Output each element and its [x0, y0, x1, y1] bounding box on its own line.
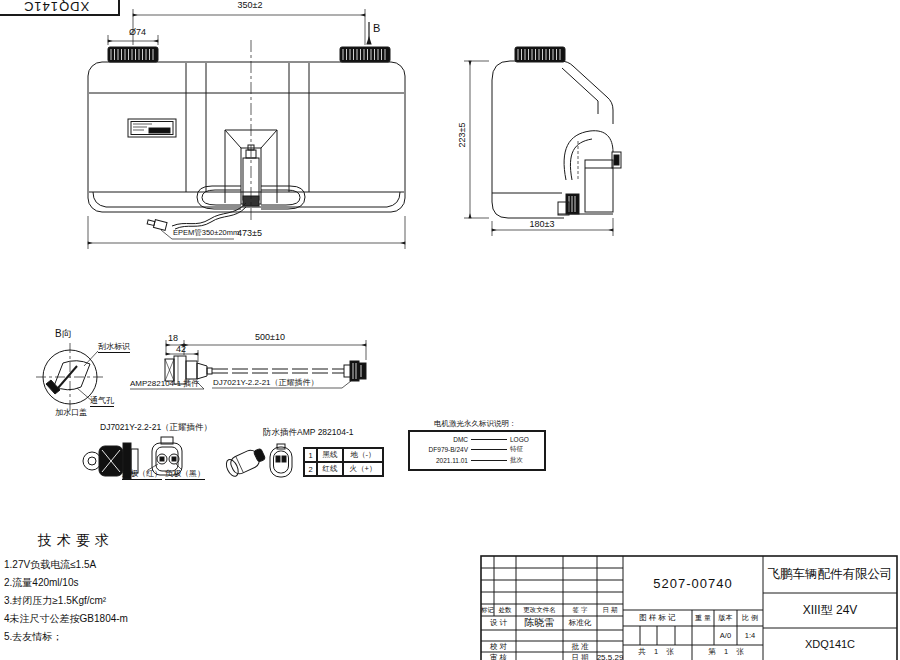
front-view-linework: [88, 9, 405, 249]
dim-side-depth: 180±3: [522, 220, 562, 230]
marking-note-key: DMC: [416, 436, 468, 443]
marking-note-row: 2021.11.01 批次: [416, 456, 538, 465]
pin-table-cell: 地（-）: [343, 448, 383, 462]
review-label: 审 核: [481, 652, 516, 660]
approve-label: 批 准: [563, 641, 597, 652]
marking-note-title: 电机激光永久标识说明：: [434, 420, 517, 428]
scale-value: 1:4: [737, 626, 763, 645]
version-value: A/0: [714, 626, 737, 645]
designer-name: 陈晓雷: [516, 615, 563, 630]
negative-terminal-label: 负极（黑）: [165, 470, 205, 480]
tech-requirements-title: 技术要求: [38, 532, 114, 550]
pin-table-cell: 火（+）: [343, 462, 383, 476]
scale-label: 比 例: [737, 610, 763, 626]
cable-dim-42: 42: [176, 345, 186, 355]
product-model: XIII型 24V: [763, 593, 897, 628]
dim-cap-diameter: Ø74: [129, 28, 146, 38]
side-view-dimension-lines: [464, 61, 613, 236]
drawing-mark-label: 图 样 标 记: [623, 610, 692, 626]
design-label: 设 计: [481, 617, 516, 629]
wiper-mark-label: 刮水标识: [98, 343, 130, 353]
tech-requirement-item: 2.流量420ml/10s: [4, 577, 78, 588]
engineering-drawing-canvas: XDQ141C 350±2 Ø74 B 473±5 EPEM管350±20mm …: [0, 0, 900, 660]
sheet-number: 第 1 张: [692, 645, 763, 659]
corner-stamp-box: XDQ141C: [0, 0, 120, 16]
dim-overall-width: 473±5: [237, 229, 262, 239]
cable-amp-connector-label: AMP282104-1 插件: [130, 380, 199, 389]
product-label-sticker: [128, 119, 176, 137]
cable-dj-connector-label: DJ7021Y-2.2-21（正耀插件）: [213, 379, 319, 388]
b-view-title: B向: [55, 328, 72, 339]
cable-dim-length: 500±10: [248, 333, 292, 343]
part-number: 5207-00740: [623, 556, 763, 610]
tech-requirement-item: 4未注尺寸公差按GB1804-m: [4, 613, 128, 624]
tube-label: EPEM管350±20mm: [173, 229, 239, 237]
dim-cap-spacing: 350±2: [232, 1, 268, 11]
marking-note-key: DF979-B/24V: [416, 446, 468, 453]
sheets-total: 共 1 张: [623, 645, 692, 659]
company-name: 飞鹏车辆配件有限公司: [763, 556, 897, 593]
pin-table: 1 黑线 地（-） 2 红线 火（+）: [303, 447, 384, 477]
marking-note-row: DF979-B/24V 特征: [416, 445, 538, 454]
date-label: 日 期: [563, 652, 597, 660]
rev-col-count: 处数: [494, 605, 516, 615]
tech-requirement-item: 3.封闭压力≥1.5Kgf/cm²: [4, 595, 106, 606]
marking-note-value: 特征: [510, 445, 538, 454]
marking-note-row: DMC LOGO: [416, 436, 538, 443]
amp-connector-title: 防水插件AMP 282104-1: [263, 428, 354, 437]
marking-note-key: 2021.11.01: [416, 457, 468, 464]
pin-table-cell: 黑线: [317, 448, 343, 462]
marking-note-value: LOGO: [510, 436, 538, 443]
vent-hole-label: 通气孔: [90, 397, 114, 407]
side-view-linework: [464, 47, 621, 236]
marking-note-line: [471, 449, 507, 450]
dj-connector-title: DJ7021Y-2.2-21（正耀插件）: [100, 423, 212, 432]
drawing-number: XDQ141C: [763, 628, 897, 660]
tech-requirement-item: 5.去友情标；: [4, 631, 62, 642]
dim-side-height: 223±5: [458, 117, 468, 153]
marking-note-line: [471, 439, 507, 440]
washer-wiper-symbol: [46, 361, 90, 394]
front-view-dimension-lines: [88, 9, 405, 249]
amp-connector-detail-linework: [224, 444, 292, 478]
date-value: 25.5.29: [597, 652, 623, 660]
rev-col-signature: 签 字: [563, 605, 597, 615]
marking-note-value: 批次: [510, 456, 538, 465]
corner-stamp-code: XDQ141C: [23, 0, 89, 14]
rev-col-file: 更改文件名: [516, 605, 563, 615]
check-label: 校 对: [481, 641, 516, 652]
marking-note-box: DMC LOGO DF979-B/24V 特征 2021.11.01 批次: [408, 430, 546, 471]
standardization-label: 标准化: [563, 617, 597, 629]
pin-table-cell: 1: [304, 448, 317, 462]
tech-requirement-item: 1.27V负载电流≤1.5A: [4, 559, 96, 570]
pin-table-cell: 红线: [317, 462, 343, 476]
rev-col-date: 日 期: [597, 605, 623, 615]
version-label: 版本: [714, 610, 737, 626]
pin-table-cell: 2: [304, 462, 317, 476]
filler-cap-label: 加水口盖: [55, 409, 87, 418]
view-arrow-label: B: [373, 22, 380, 34]
rev-col-mark: 标记: [481, 605, 494, 615]
cable-dim-18: 18: [168, 334, 178, 344]
weight-label: 重 量: [692, 610, 714, 626]
marking-note-line: [471, 460, 507, 461]
positive-terminal-label: 正极（红）: [122, 470, 162, 480]
